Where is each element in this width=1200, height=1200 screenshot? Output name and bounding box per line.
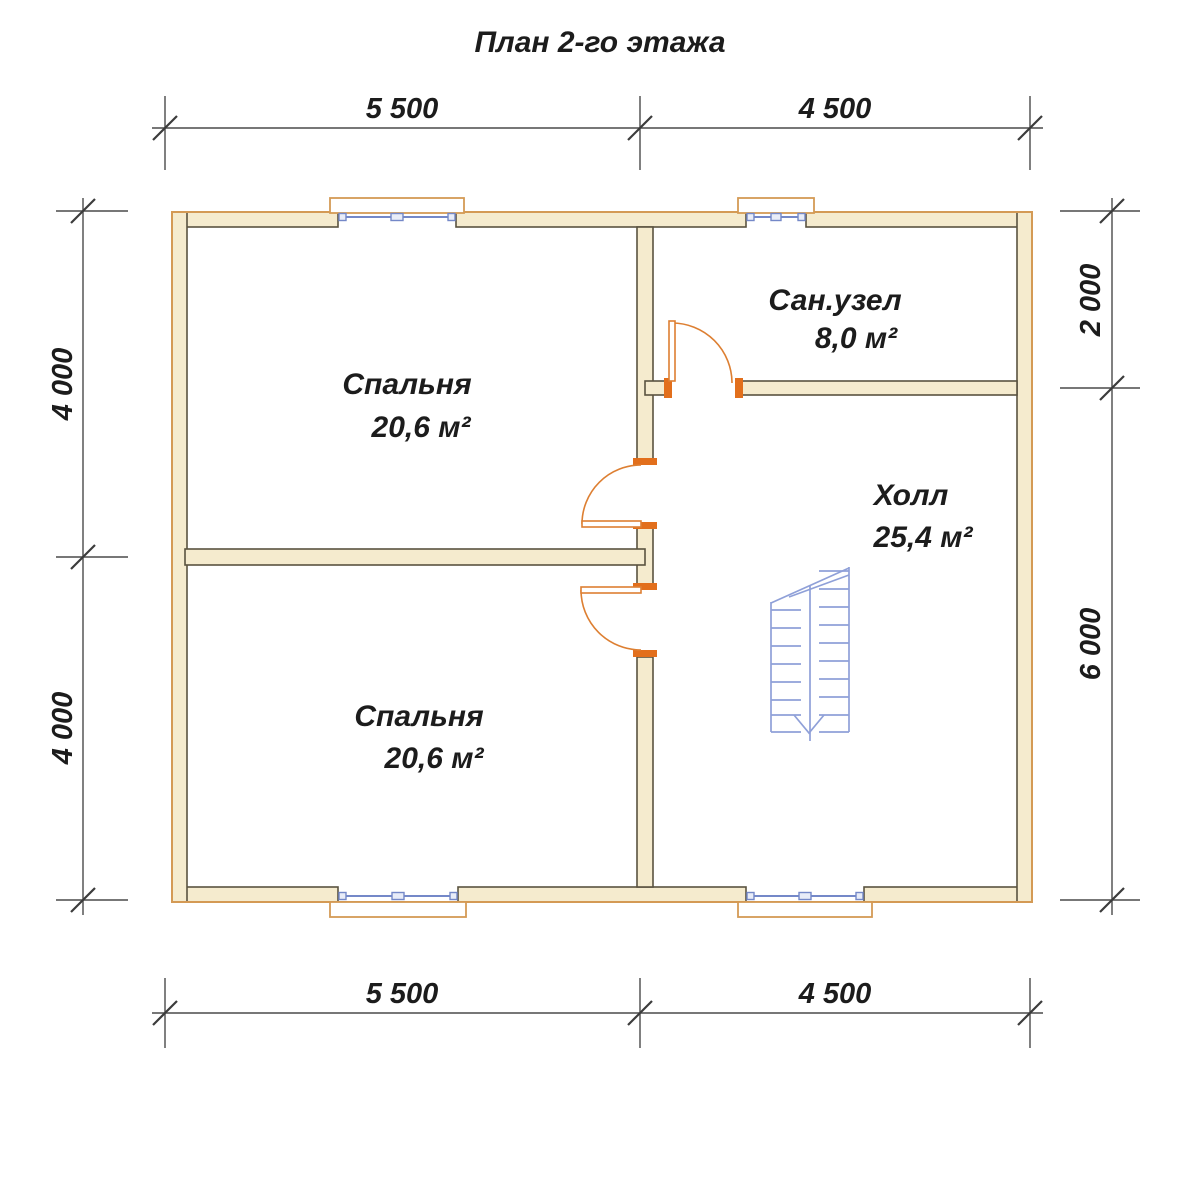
room-area-bedroom-top: 20,6 м² (371, 411, 472, 444)
window-frame-mark (339, 214, 346, 221)
floor-plan-page: План 2-го этажа 5 500 4 500 5 500 4 500 … (0, 0, 1200, 1200)
stair-break-line (789, 575, 849, 597)
room-label-bathroom: Сан.узел (768, 284, 902, 317)
room-label-bedroom-top: Спальня (342, 368, 472, 401)
walls (172, 212, 1032, 902)
dimension-chain-bottom: 5 500 4 500 (152, 978, 1043, 1048)
door-leaf (582, 521, 641, 527)
dim-label-right-upper: 2 000 (1075, 264, 1107, 338)
wall-right (1017, 212, 1032, 902)
dim-label-top-right: 4 500 (798, 93, 872, 125)
floor-plan-drawing: План 2-го этажа 5 500 4 500 5 500 4 500 … (0, 0, 1200, 1200)
wall-bottom-segment (458, 887, 746, 902)
door-leaf (669, 321, 675, 381)
window-frame-mark (339, 893, 346, 900)
stair-direction-arrow (794, 715, 824, 733)
page-title: План 2-го этажа (474, 26, 725, 59)
door-swing-arc (581, 590, 641, 650)
door-swing-arc (582, 465, 641, 524)
wall-bottom-segment (172, 887, 338, 902)
wall-central-segment (637, 227, 653, 460)
window-frame-mark (798, 214, 805, 221)
door-jamb (735, 378, 743, 398)
door-jamb (633, 458, 657, 465)
dim-label-bottom-right: 4 500 (798, 978, 872, 1010)
window-frame-mark (450, 893, 457, 900)
staircase (771, 567, 849, 741)
door-jamb (633, 650, 657, 657)
dim-label-right-lower: 6 000 (1075, 608, 1107, 681)
window-hall (738, 893, 872, 918)
window-frame-mark (771, 214, 781, 221)
wall-bathroom-segment (739, 381, 1017, 395)
window-sill (330, 198, 464, 213)
window-frame-mark (856, 893, 863, 900)
window-frame-mark (392, 893, 404, 900)
door-swing-arc (672, 323, 732, 383)
wall-top-segment (806, 212, 1032, 227)
wall-top-segment (456, 212, 746, 227)
window-frame-mark (747, 893, 754, 900)
room-label-bedroom-bottom: Спальня (354, 700, 484, 733)
window-bedroom-bottom (330, 893, 466, 918)
door-leaf (581, 587, 641, 593)
room-area-bathroom: 8,0 м² (815, 322, 898, 355)
window-frame-mark (799, 893, 811, 900)
dim-label-bottom-left: 5 500 (366, 978, 439, 1010)
window-frame-mark (747, 214, 754, 221)
door-bathroom (664, 321, 743, 398)
window-frame-mark (391, 214, 403, 221)
dimension-chain-top: 5 500 4 500 (152, 93, 1043, 170)
wall-bottom-segment (864, 887, 1032, 902)
room-area-hall: 25,4 м² (873, 521, 974, 554)
wall-central-segment (637, 657, 653, 887)
window-bathroom (738, 198, 814, 221)
dim-label-left-lower: 4 000 (47, 692, 79, 766)
room-area-bedroom-bottom: 20,6 м² (384, 742, 485, 775)
dimension-chain-right: 2 000 6 000 (1060, 198, 1140, 915)
dimension-chain-left: 4 000 4 000 (47, 198, 128, 915)
room-label-hall: Холл (872, 479, 949, 512)
door-bedroom-top (582, 458, 657, 529)
window-sill (330, 902, 466, 917)
dim-label-top-left: 5 500 (366, 93, 439, 125)
wall-top-segment (172, 212, 338, 227)
wall-bedroom-divider (185, 549, 645, 565)
window-sill (738, 198, 814, 213)
room-labels: Спальня 20,6 м² Сан.узел 8,0 м² Холл 25,… (342, 284, 973, 775)
window-frame-mark (448, 214, 455, 221)
window-sill (738, 902, 872, 917)
dim-label-left-upper: 4 000 (47, 348, 79, 422)
door-bedroom-bottom (581, 583, 657, 657)
window-bedroom-top (330, 198, 464, 221)
